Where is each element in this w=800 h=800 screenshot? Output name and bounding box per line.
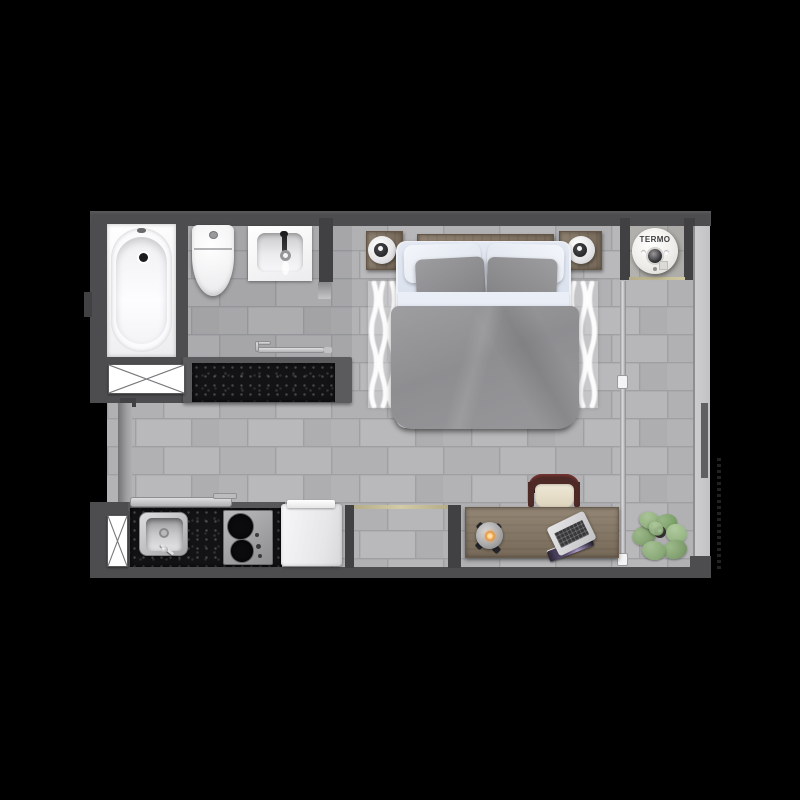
desk-chair-seat	[535, 484, 574, 508]
right-glass-wall	[693, 226, 710, 556]
water-heater-plate	[659, 261, 668, 270]
sliding-door-handle-top	[617, 375, 628, 389]
bathtub-drain-icon	[139, 253, 148, 262]
washbasin-water-streak	[282, 261, 289, 275]
plan-canvas: TERMO	[0, 0, 800, 800]
desk-lamp-glow	[485, 531, 495, 541]
refrigerator	[281, 504, 342, 566]
kitchen-storage-box	[107, 515, 128, 567]
water-heater-screw-right	[664, 250, 669, 255]
water-heater-valve-dot	[653, 267, 657, 271]
cooktop-knob-2	[256, 544, 261, 549]
washbasin-drain-icon	[280, 250, 291, 261]
bed-duvet-fold-highlight	[391, 306, 579, 429]
heater-niche-door-track	[629, 277, 685, 280]
bed-duvet	[391, 306, 579, 429]
entry-post-right	[448, 505, 461, 568]
kitchen-sink	[139, 512, 188, 556]
right-wall-bottom-cap	[690, 556, 711, 577]
kitchen-shelf-bracket	[213, 493, 237, 499]
toilet-tank-seam	[194, 248, 232, 250]
cooktop-knob-3	[258, 554, 262, 558]
water-heater: TERMO	[632, 228, 678, 274]
cooktop-burner-top	[228, 514, 253, 539]
towel-rail	[257, 347, 325, 353]
desk-chair-arm-left	[528, 482, 534, 507]
table-lamp-right-bulb-dot	[577, 246, 582, 251]
right-wall-inset	[701, 403, 708, 478]
towel-rail-end-cap	[324, 347, 332, 353]
kitchen-sink-faucet-base	[161, 546, 168, 553]
washbasin-faucet-stem	[282, 232, 287, 252]
toilet-flush-button	[209, 231, 218, 239]
entry-door-threshold	[354, 505, 448, 509]
heater-niche-post-left	[620, 218, 630, 280]
potted-plant	[632, 512, 688, 561]
towel-rail-bracket-side	[255, 341, 259, 352]
plant-leaf-6	[641, 539, 667, 561]
floor-plan-page: { "title": "Studio apartment floor plan …	[0, 0, 800, 800]
kitchen-sink-drain-icon	[159, 528, 169, 538]
cooktop-burner-bottom	[231, 540, 253, 562]
sliding-door-track	[620, 281, 626, 562]
laptop-keyboard	[554, 520, 589, 548]
left-edge-lip	[118, 403, 132, 504]
washbasin-counter	[248, 226, 312, 281]
table-lamp-left-bulb-dot	[378, 246, 383, 251]
water-heater-screw-left	[641, 250, 646, 255]
water-heater-label: TERMO	[632, 235, 678, 245]
bathroom-storage-box	[108, 364, 185, 394]
bathtub	[107, 224, 176, 357]
bottom-wall	[90, 567, 711, 578]
desk-chair-arm-right	[574, 482, 580, 507]
entry-post-left	[345, 505, 354, 568]
cooktop-knob-1	[255, 533, 259, 537]
refrigerator-lid	[287, 500, 335, 508]
vanity-counter-granite	[192, 363, 335, 402]
bathtub-faucet-icon	[137, 228, 146, 233]
cooktop	[223, 510, 273, 565]
wall-mounted-fixture	[318, 282, 331, 299]
left-wall-pilaster	[84, 292, 92, 317]
sink-partition-wall	[319, 218, 333, 282]
tub-divider-wall	[175, 222, 188, 358]
exterior-artifact-line	[717, 458, 721, 572]
